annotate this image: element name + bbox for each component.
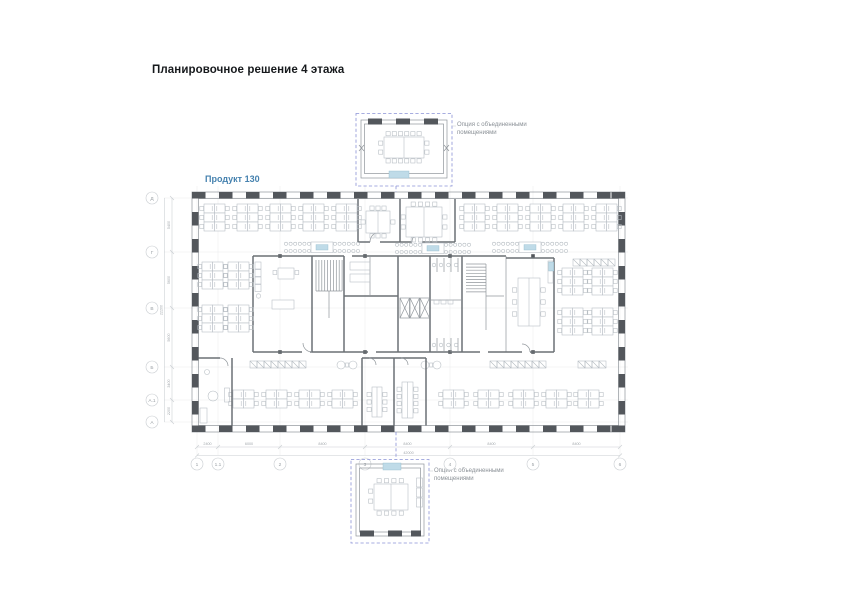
desk-cluster [332, 204, 361, 231]
svg-text:6000: 6000 [245, 442, 253, 446]
desk-cluster [559, 204, 588, 231]
desk-cluster [460, 204, 489, 231]
svg-text:1.1: 1.1 [215, 462, 222, 468]
svg-text:2200: 2200 [167, 407, 171, 415]
desk-cluster [233, 204, 262, 231]
desk-cluster [509, 390, 538, 408]
meeting-room-table [367, 387, 387, 417]
desk-cluster [224, 305, 253, 332]
svg-text:8400: 8400 [572, 442, 580, 446]
desk-cluster [558, 268, 587, 295]
svg-text:5400: 5400 [167, 221, 171, 229]
grid-axis-bubble: А [146, 416, 158, 428]
svg-text:8400: 8400 [487, 442, 495, 446]
desk-cluster [542, 390, 571, 408]
option-rooms [351, 114, 456, 544]
desk-cluster [229, 390, 258, 408]
desk-cluster [558, 308, 587, 335]
desk-cluster [295, 390, 324, 408]
grid-axis-bubble: 2 [274, 458, 286, 470]
svg-text:2400: 2400 [203, 442, 211, 446]
svg-text:5600: 5600 [167, 333, 171, 341]
desk-cluster [224, 262, 253, 289]
desk-cluster [200, 204, 229, 231]
svg-text:5: 5 [532, 462, 535, 468]
desk-cluster [266, 204, 295, 231]
grid-axis-bubble: 1.1 [212, 458, 224, 470]
coffee-bench [284, 242, 359, 253]
grid-axis-bubble: А.1 [146, 394, 158, 406]
svg-text:2: 2 [279, 462, 282, 468]
desk-cluster [493, 204, 522, 231]
desk-cluster [198, 262, 227, 289]
desk-cluster [592, 204, 621, 231]
grid-axis-bubble: Б [146, 361, 158, 373]
locker-row [573, 259, 615, 266]
desk-cluster [198, 305, 227, 332]
lounge-armchairs [421, 361, 441, 369]
grid-axis-bubble: 1 [191, 458, 203, 470]
option-room-bottom [351, 460, 429, 544]
meeting-room-table [401, 202, 447, 242]
grid-axis-bubble: 5 [527, 458, 539, 470]
meeting-room-table [361, 206, 395, 238]
svg-text:1: 1 [196, 462, 199, 468]
svg-text:5600: 5600 [167, 276, 171, 284]
desk-cluster [328, 390, 357, 408]
desk-cluster [474, 390, 503, 408]
conference-table [369, 479, 408, 516]
grid-axis-bubble: Г [146, 246, 158, 258]
floor-plan-drawing: 2400600084008400840084004200011.12345654… [0, 0, 867, 600]
svg-text:22200: 22200 [160, 305, 164, 315]
svg-text:8400: 8400 [318, 442, 326, 446]
conference-table [379, 132, 429, 163]
svg-text:Г: Г [151, 250, 154, 256]
svg-text:3400: 3400 [167, 379, 171, 387]
svg-text:А.1: А.1 [148, 398, 156, 404]
desk-cluster [588, 268, 617, 295]
desk-cluster [588, 308, 617, 335]
svg-text:4: 4 [449, 462, 452, 468]
desk-cluster [262, 390, 291, 408]
svg-text:В: В [150, 306, 153, 312]
grid-axis-bubble: В [146, 302, 158, 314]
svg-text:Б: Б [150, 365, 153, 371]
svg-text:8400: 8400 [403, 442, 411, 446]
floorplan-sheet: Планировочное решение 4 этажа Продукт 13… [0, 0, 867, 600]
lounge-armchairs [337, 361, 357, 369]
svg-text:3: 3 [364, 462, 367, 468]
svg-text:42000: 42000 [403, 451, 413, 455]
desk-cluster [574, 390, 603, 408]
office-room [200, 370, 230, 424]
coffee-bench [492, 242, 567, 253]
desk-cluster [526, 204, 555, 231]
desk-cluster [299, 204, 328, 231]
svg-text:6: 6 [619, 462, 622, 468]
grid-axis-bubble: 6 [614, 458, 626, 470]
grid-axis-bubble: 4 [444, 458, 456, 470]
option-room-top [356, 114, 452, 187]
desk-cluster [439, 390, 468, 408]
grid-axis-bubble: Д [146, 192, 158, 204]
